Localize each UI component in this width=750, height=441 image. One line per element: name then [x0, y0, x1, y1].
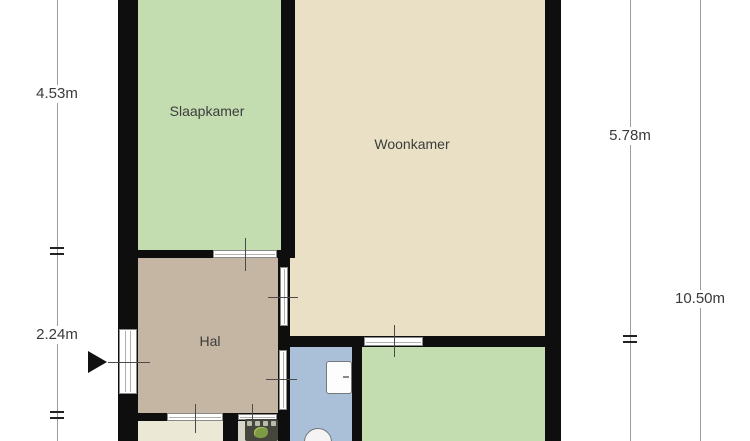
- front-door-marker: [108, 362, 150, 363]
- door-slaapkamer-marker: [245, 238, 246, 271]
- dimension-label-right-inner: 5.78m: [606, 127, 654, 145]
- dimension-line-right-inner: [630, 0, 631, 441]
- room-slaapkamer: [138, 0, 283, 254]
- opening-hal-nook-marker: [252, 404, 253, 420]
- dimension-line-right-outer: [700, 0, 701, 441]
- wall-slaapkamer-woonkamer: [281, 0, 295, 258]
- wall-kitchen-stub: [223, 413, 238, 441]
- floor-plan: 4.53m 2.24m 5.78m 10.50m Slaapkamer Woon…: [0, 0, 750, 441]
- door-hal-bathroom-marker: [266, 379, 297, 380]
- room-label-slaapkamer: Slaapkamer: [170, 103, 245, 119]
- dimension-label-left-upper: 4.53m: [33, 85, 81, 103]
- room-woonkamer: [287, 0, 545, 340]
- window-bottom-room-marker: [394, 325, 395, 357]
- entrance-arrow-icon: [88, 351, 107, 373]
- dimension-tick: [50, 247, 64, 255]
- dimension-tick: [623, 335, 637, 343]
- dimension-line-left: [57, 0, 58, 441]
- room-bottom-right: [356, 347, 545, 441]
- dimension-tick: [50, 411, 64, 419]
- dimension-label-left-lower: 2.24m: [33, 326, 81, 344]
- wall-bathroom-right: [352, 336, 362, 441]
- room-label-hal: Hal: [199, 333, 220, 349]
- sink-fixture: [326, 361, 352, 394]
- room-label-woonkamer: Woonkamer: [374, 136, 449, 152]
- door-hal-bathroom: [279, 350, 287, 410]
- plant-icon: [254, 427, 268, 438]
- wall-outer-right: [545, 0, 561, 441]
- dimension-label-right-outer: 10.50m: [672, 290, 728, 308]
- door-hal-kitchen-marker: [195, 404, 196, 433]
- stove-fixture: [245, 419, 278, 441]
- door-hal-woonkamer-marker: [268, 297, 298, 298]
